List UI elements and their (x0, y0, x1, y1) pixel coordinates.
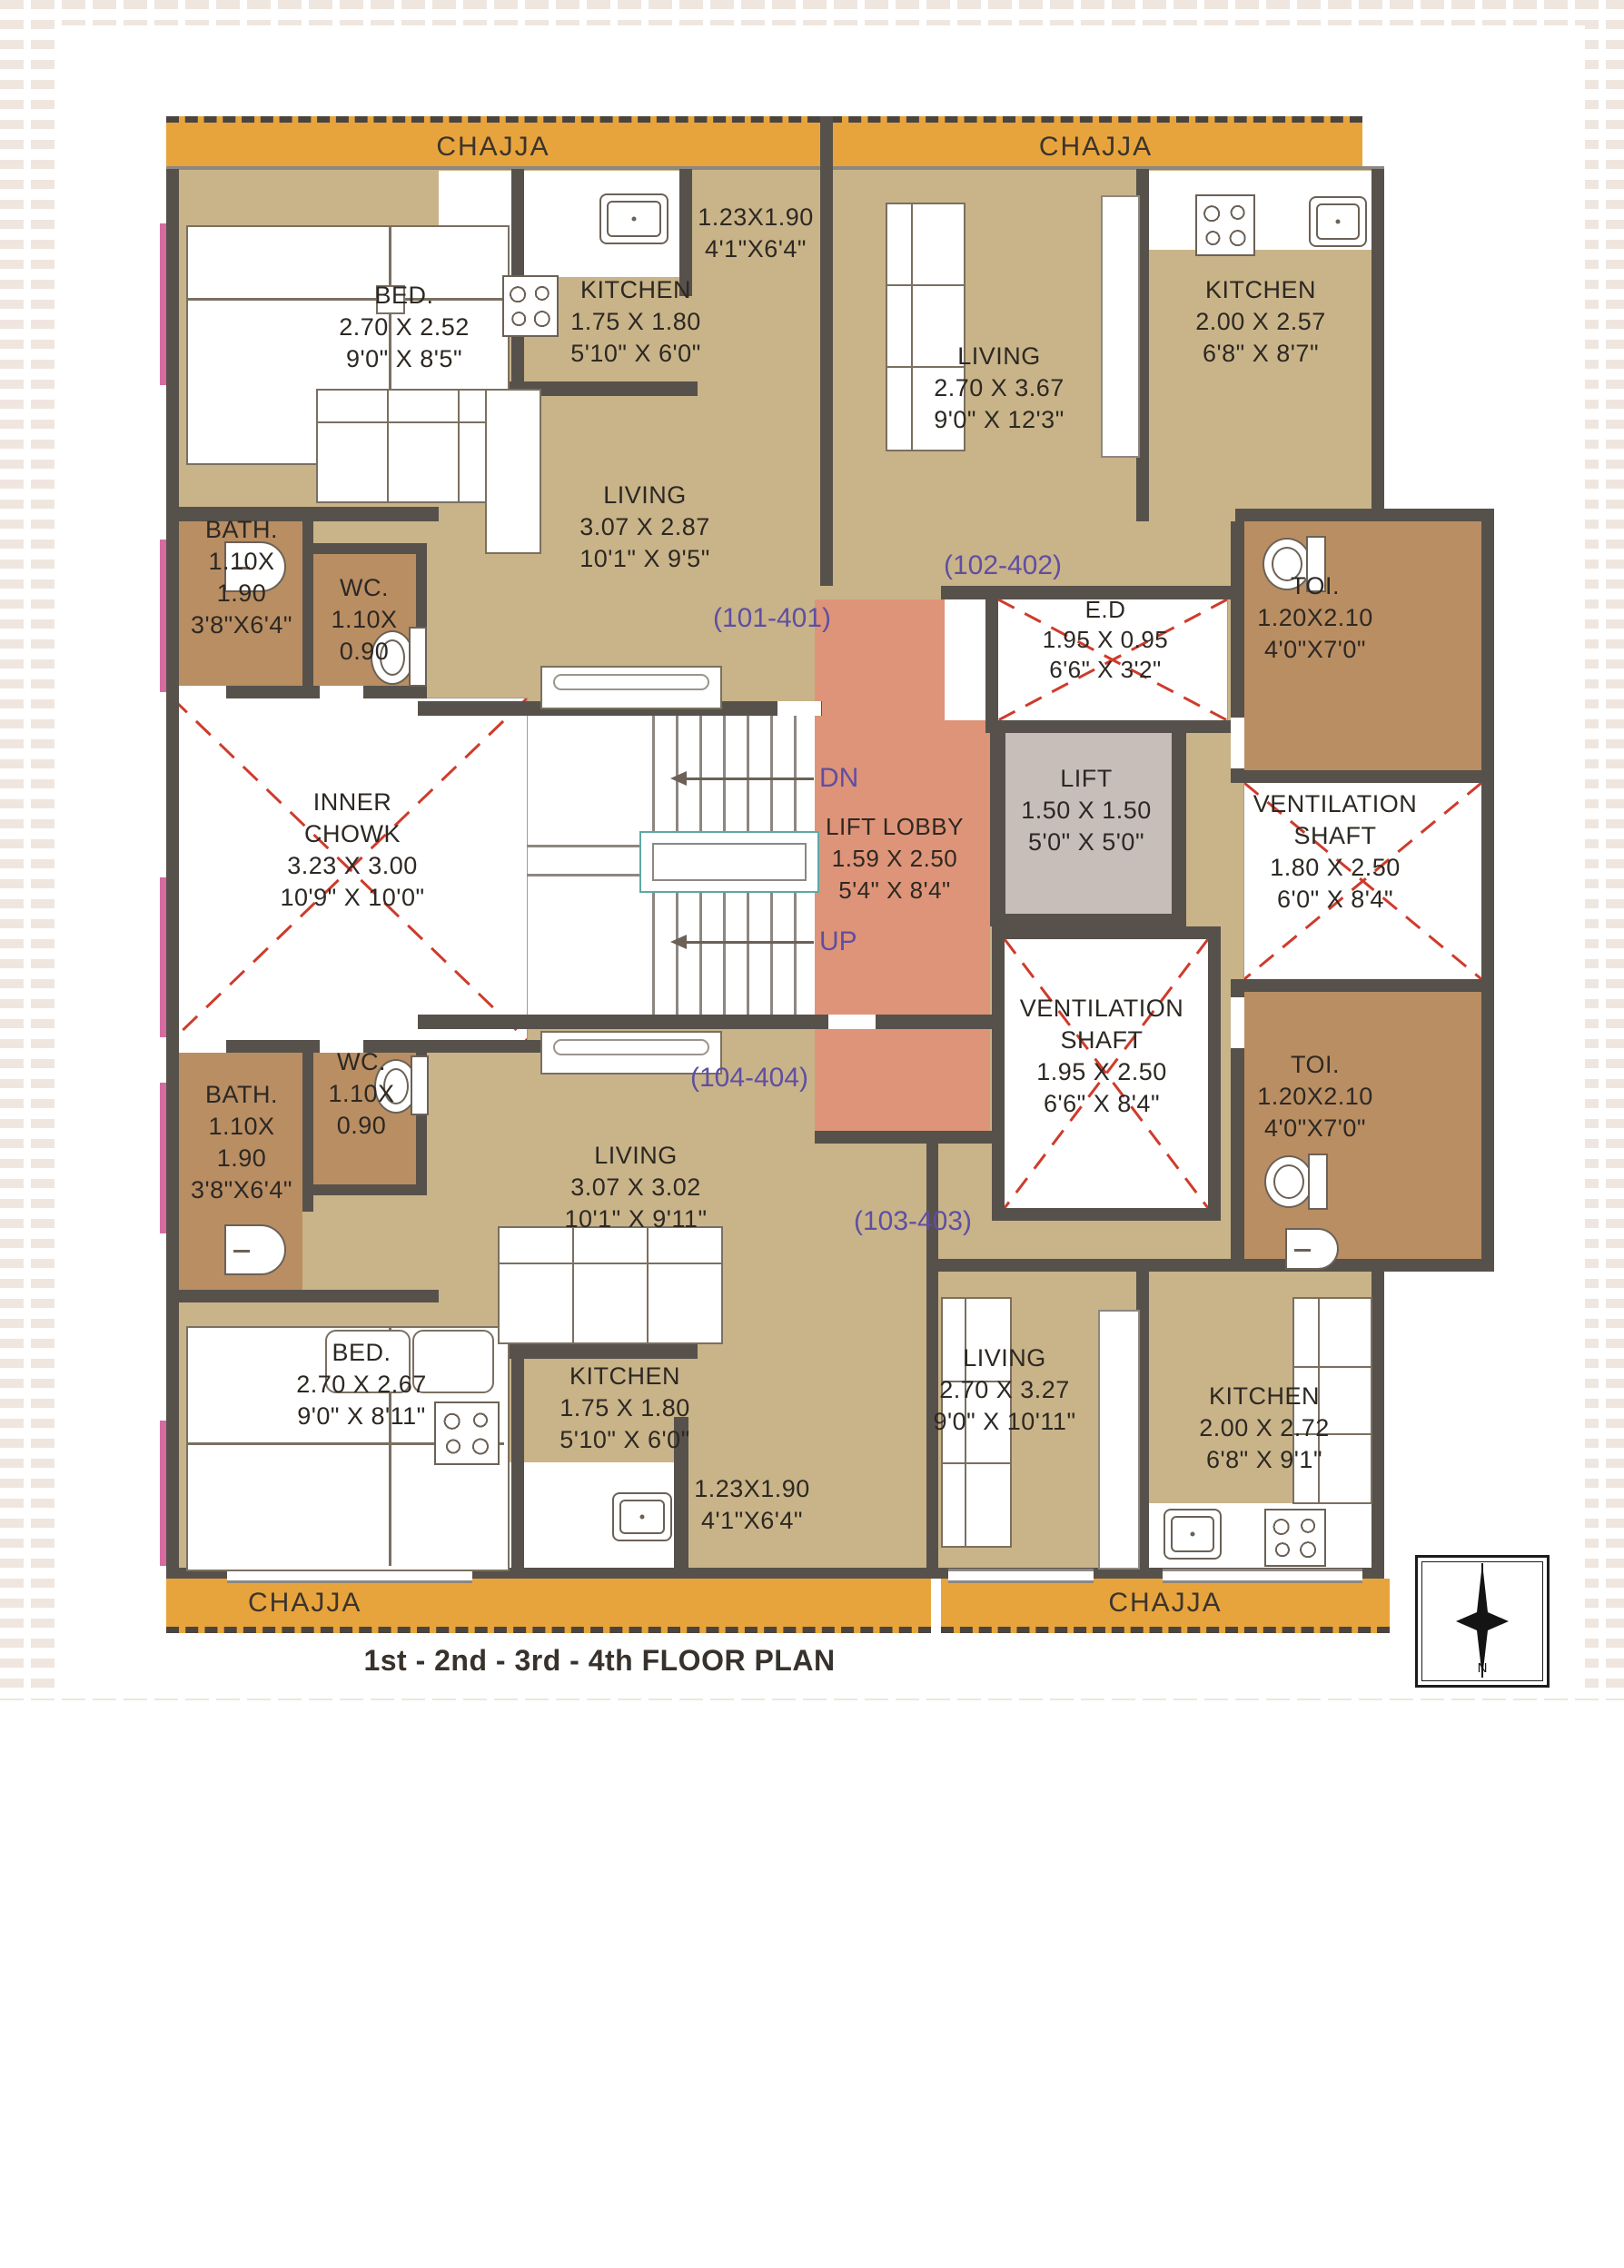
room-label-living-bl: LIVING3.07 X 3.0210'1" X 9'11" (564, 1140, 707, 1235)
room-label-vent-shaft-bottom: VENTILATIONSHAFT1.95 X 2.506'6" X 8'4" (1020, 993, 1184, 1120)
room-label-living-tr: LIVING2.70 X 3.679'0" X 12'3" (934, 341, 1065, 436)
chajja-label: CHAJJA (248, 1588, 361, 1619)
stairs-up-label: UP (819, 926, 857, 957)
compass-north-letter: N (1478, 1660, 1488, 1676)
room-label-wc-tl: WC.1.10X0.90 (331, 572, 397, 668)
room-label-inner-chowk: INNERCHOWK3.23 X 3.0010'9" X 10'0" (280, 787, 424, 914)
wall (1481, 509, 1494, 1272)
wall (1371, 169, 1384, 521)
stove-icon (1264, 1509, 1326, 1567)
tv-console (540, 666, 722, 709)
wall (1231, 770, 1494, 783)
toilet-icon (1264, 1155, 1313, 1208)
wall (166, 166, 1384, 170)
door-opening (1231, 997, 1244, 1048)
wall (990, 914, 1186, 926)
door-opening (179, 686, 226, 698)
up-arrowhead-icon (670, 935, 687, 949)
room-label-kitchen-tr: KITCHEN2.00 X 2.576'8" X 8'7" (1195, 274, 1326, 370)
stair-tread (527, 845, 652, 847)
stove-icon (434, 1401, 500, 1465)
up-arrow (687, 941, 814, 944)
room-label-kitchen-tl: KITCHEN1.75 X 1.805'10" X 6'0" (570, 274, 701, 370)
sink-icon (599, 193, 668, 244)
door-opening (179, 1040, 226, 1053)
chajja-label: CHAJJA (1039, 132, 1153, 163)
balcony-door (1101, 195, 1140, 458)
stove-icon (1195, 194, 1255, 256)
unit-id-104-404: (104-404) (690, 1063, 808, 1094)
wash-basin-icon (224, 1224, 286, 1275)
wall (418, 1015, 1005, 1029)
wall (992, 1208, 1221, 1221)
floor-plan-page: CHAJJA CHAJJA CHAJJA CHAJJA (0, 0, 1624, 2268)
wall (1231, 1259, 1494, 1272)
wall (992, 939, 1005, 1221)
window (948, 1569, 1094, 1583)
chajja-band-bottom-left: CHAJJA (166, 1579, 931, 1633)
wall (1371, 1272, 1384, 1579)
sink-icon (1164, 1509, 1222, 1560)
room-label-kitchen-bl: KITCHEN1.75 X 1.805'10" X 6'0" (559, 1361, 690, 1456)
door-opening (320, 686, 363, 698)
north-compass: N (1415, 1555, 1550, 1688)
chajja-label: CHAJJA (436, 132, 550, 163)
wall (985, 720, 1235, 733)
room-label-vent-shaft-top: VENTILATIONSHAFT1.80 X 2.506'0" X 8'4" (1253, 788, 1418, 916)
window (1163, 1569, 1362, 1583)
balcony-door (1098, 1310, 1140, 1570)
stair-tread (527, 874, 652, 876)
sofa-chaise (485, 389, 541, 554)
wall (1208, 939, 1221, 1221)
wall (1231, 979, 1494, 992)
wall (1172, 733, 1186, 914)
wall (985, 599, 998, 720)
room-label-bath-tl: BATH.1.10X1.903'8"X6'4" (191, 514, 292, 641)
room-label-living-tl: LIVING3.07 X 2.8710'1" X 9'5" (579, 480, 710, 575)
room-label-toi-bottom: TOI.1.20X2.104'0"X7'0" (1257, 1049, 1373, 1144)
room-label-lift: LIFT1.50 X 1.505'0" X 5'0" (1021, 763, 1152, 858)
toilet-tank (409, 627, 427, 687)
wall (166, 169, 179, 1579)
wall (992, 926, 1221, 939)
wash-basin-icon (1285, 1228, 1339, 1270)
room-label-bed-tl: BED.2.70 X 2.529'0" X 8'5" (339, 280, 470, 375)
room-label-bed-bl: BED.2.70 X 2.679'0" X 8'11" (296, 1337, 427, 1432)
ed-door-opening (945, 599, 985, 720)
stove-icon (502, 275, 559, 337)
chajja-label: CHAJJA (1108, 1588, 1222, 1619)
stair-rail (639, 831, 819, 893)
stairs-dn-label: DN (819, 763, 858, 794)
unit-id-102-402: (102-402) (944, 550, 1062, 581)
unit-id-103-403: (103-403) (854, 1206, 972, 1237)
window-accent (160, 223, 166, 385)
wall (313, 543, 427, 554)
wall (302, 521, 313, 686)
sink-icon (1309, 196, 1367, 247)
wall (820, 116, 833, 586)
wall (990, 733, 1005, 914)
wall (1235, 509, 1494, 521)
door-opening (828, 1015, 876, 1029)
wall (166, 1290, 439, 1302)
chajja-band-top-left: CHAJJA (166, 116, 820, 171)
room-label-flowerbed-tl: 1.23X1.904'1"X6'4" (698, 202, 814, 265)
door-opening (777, 701, 821, 716)
room-label-kitchen-br: KITCHEN2.00 X 2.726'8" X 9'1" (1199, 1381, 1330, 1476)
toilet-tank (411, 1055, 429, 1115)
window-accent (160, 1083, 166, 1233)
room-label-wc-bl: WC.1.10X0.90 (328, 1046, 394, 1142)
room-label-living-br: LIVING2.70 X 3.279'0" X 10'11" (933, 1342, 1075, 1438)
wall (313, 1184, 427, 1195)
chajja-band-top-right: CHAJJA (829, 116, 1362, 171)
plan-title: 1st - 2nd - 3rd - 4th FLOOR PLAN (363, 1644, 835, 1678)
door-opening (1231, 718, 1244, 768)
room-label-bath-bl: BATH.1.10X1.903'8"X6'4" (191, 1079, 292, 1206)
window-accent (160, 540, 166, 692)
toilet-tank (1308, 1154, 1328, 1210)
room-label-ed: E.D1.95 X 0.956'6" X 3'2" (1043, 595, 1169, 685)
window-accent (160, 877, 166, 1037)
room-label-flowerbed-bl: 1.23X1.904'1"X6'4" (694, 1473, 810, 1537)
sink-icon (612, 1492, 672, 1541)
wall (815, 1131, 1005, 1144)
dn-arrowhead-icon (670, 771, 687, 786)
sofa (498, 1226, 723, 1344)
dn-arrow (687, 777, 814, 780)
window-accent (160, 1421, 166, 1566)
room-label-lift-lobby: LIFT LOBBY1.59 X 2.505'4" X 8'4" (826, 811, 964, 906)
unit-id-101-401: (101-401) (713, 603, 831, 634)
chajja-band-bottom-right: CHAJJA (941, 1579, 1390, 1633)
room-label-toi-top: TOI.1.20X2.104'0"X7'0" (1257, 570, 1373, 666)
wall (302, 1053, 313, 1212)
